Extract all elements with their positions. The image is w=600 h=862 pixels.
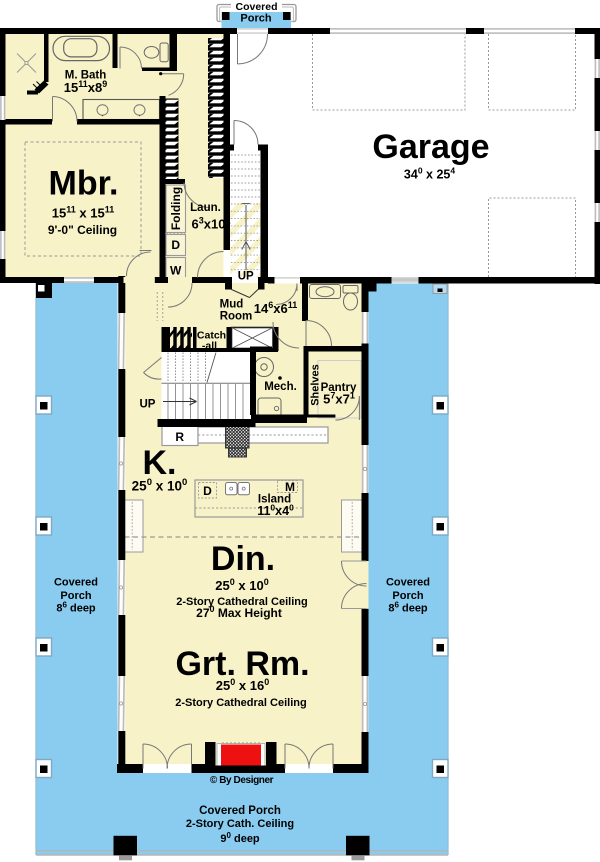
svg-text:Garage: Garage (372, 128, 489, 166)
svg-text:90 deep: 90 deep (220, 831, 260, 845)
svg-text:Room: Room (220, 311, 253, 323)
svg-text:Mbr.: Mbr. (49, 165, 119, 203)
svg-text:Laun.: Laun. (190, 202, 221, 214)
svg-text:R: R (175, 430, 184, 444)
svg-text:D: D (203, 484, 212, 498)
svg-text:-all: -all (202, 340, 217, 352)
svg-text:Covered: Covered (235, 1, 277, 13)
svg-text:86 deep: 86 deep (56, 601, 96, 615)
svg-text:M: M (285, 480, 295, 494)
svg-text:63x101: 63x101 (192, 216, 231, 232)
svg-text:250 x 160: 250 x 160 (216, 677, 269, 693)
svg-text:Mud: Mud (220, 299, 244, 311)
svg-text:Mech.: Mech. (264, 381, 297, 393)
svg-text:9'-0" Ceiling: 9'-0" Ceiling (48, 223, 117, 237)
svg-text:UP: UP (238, 271, 254, 283)
svg-text:UP: UP (140, 399, 156, 411)
svg-text:Porch: Porch (240, 13, 271, 25)
svg-text:Covered: Covered (54, 577, 98, 589)
svg-text:Folding: Folding (169, 187, 183, 230)
svg-text:110x40: 110x40 (257, 503, 294, 519)
svg-text:© By Designer: © By Designer (210, 775, 274, 786)
svg-text:W: W (170, 264, 182, 278)
svg-text:2-Story Cath. Ceiling: 2-Story Cath. Ceiling (186, 818, 294, 830)
svg-text:270 Max Height: 270 Max Height (196, 604, 282, 620)
svg-text:Shelves: Shelves (310, 364, 322, 406)
svg-text:250 x 100: 250 x 100 (215, 577, 268, 593)
svg-text:D: D (171, 238, 180, 252)
svg-text:Covered: Covered (386, 577, 430, 589)
svg-text:340 x 254: 340 x 254 (404, 166, 455, 182)
svg-text:Covered Porch: Covered Porch (199, 805, 281, 817)
svg-text:2-Story Cathedral Ceiling: 2-Story Cathedral Ceiling (175, 697, 306, 709)
svg-text:Din.: Din. (211, 540, 275, 578)
svg-text:250 x 100: 250 x 100 (132, 477, 188, 494)
svg-text:86 deep: 86 deep (388, 601, 428, 615)
